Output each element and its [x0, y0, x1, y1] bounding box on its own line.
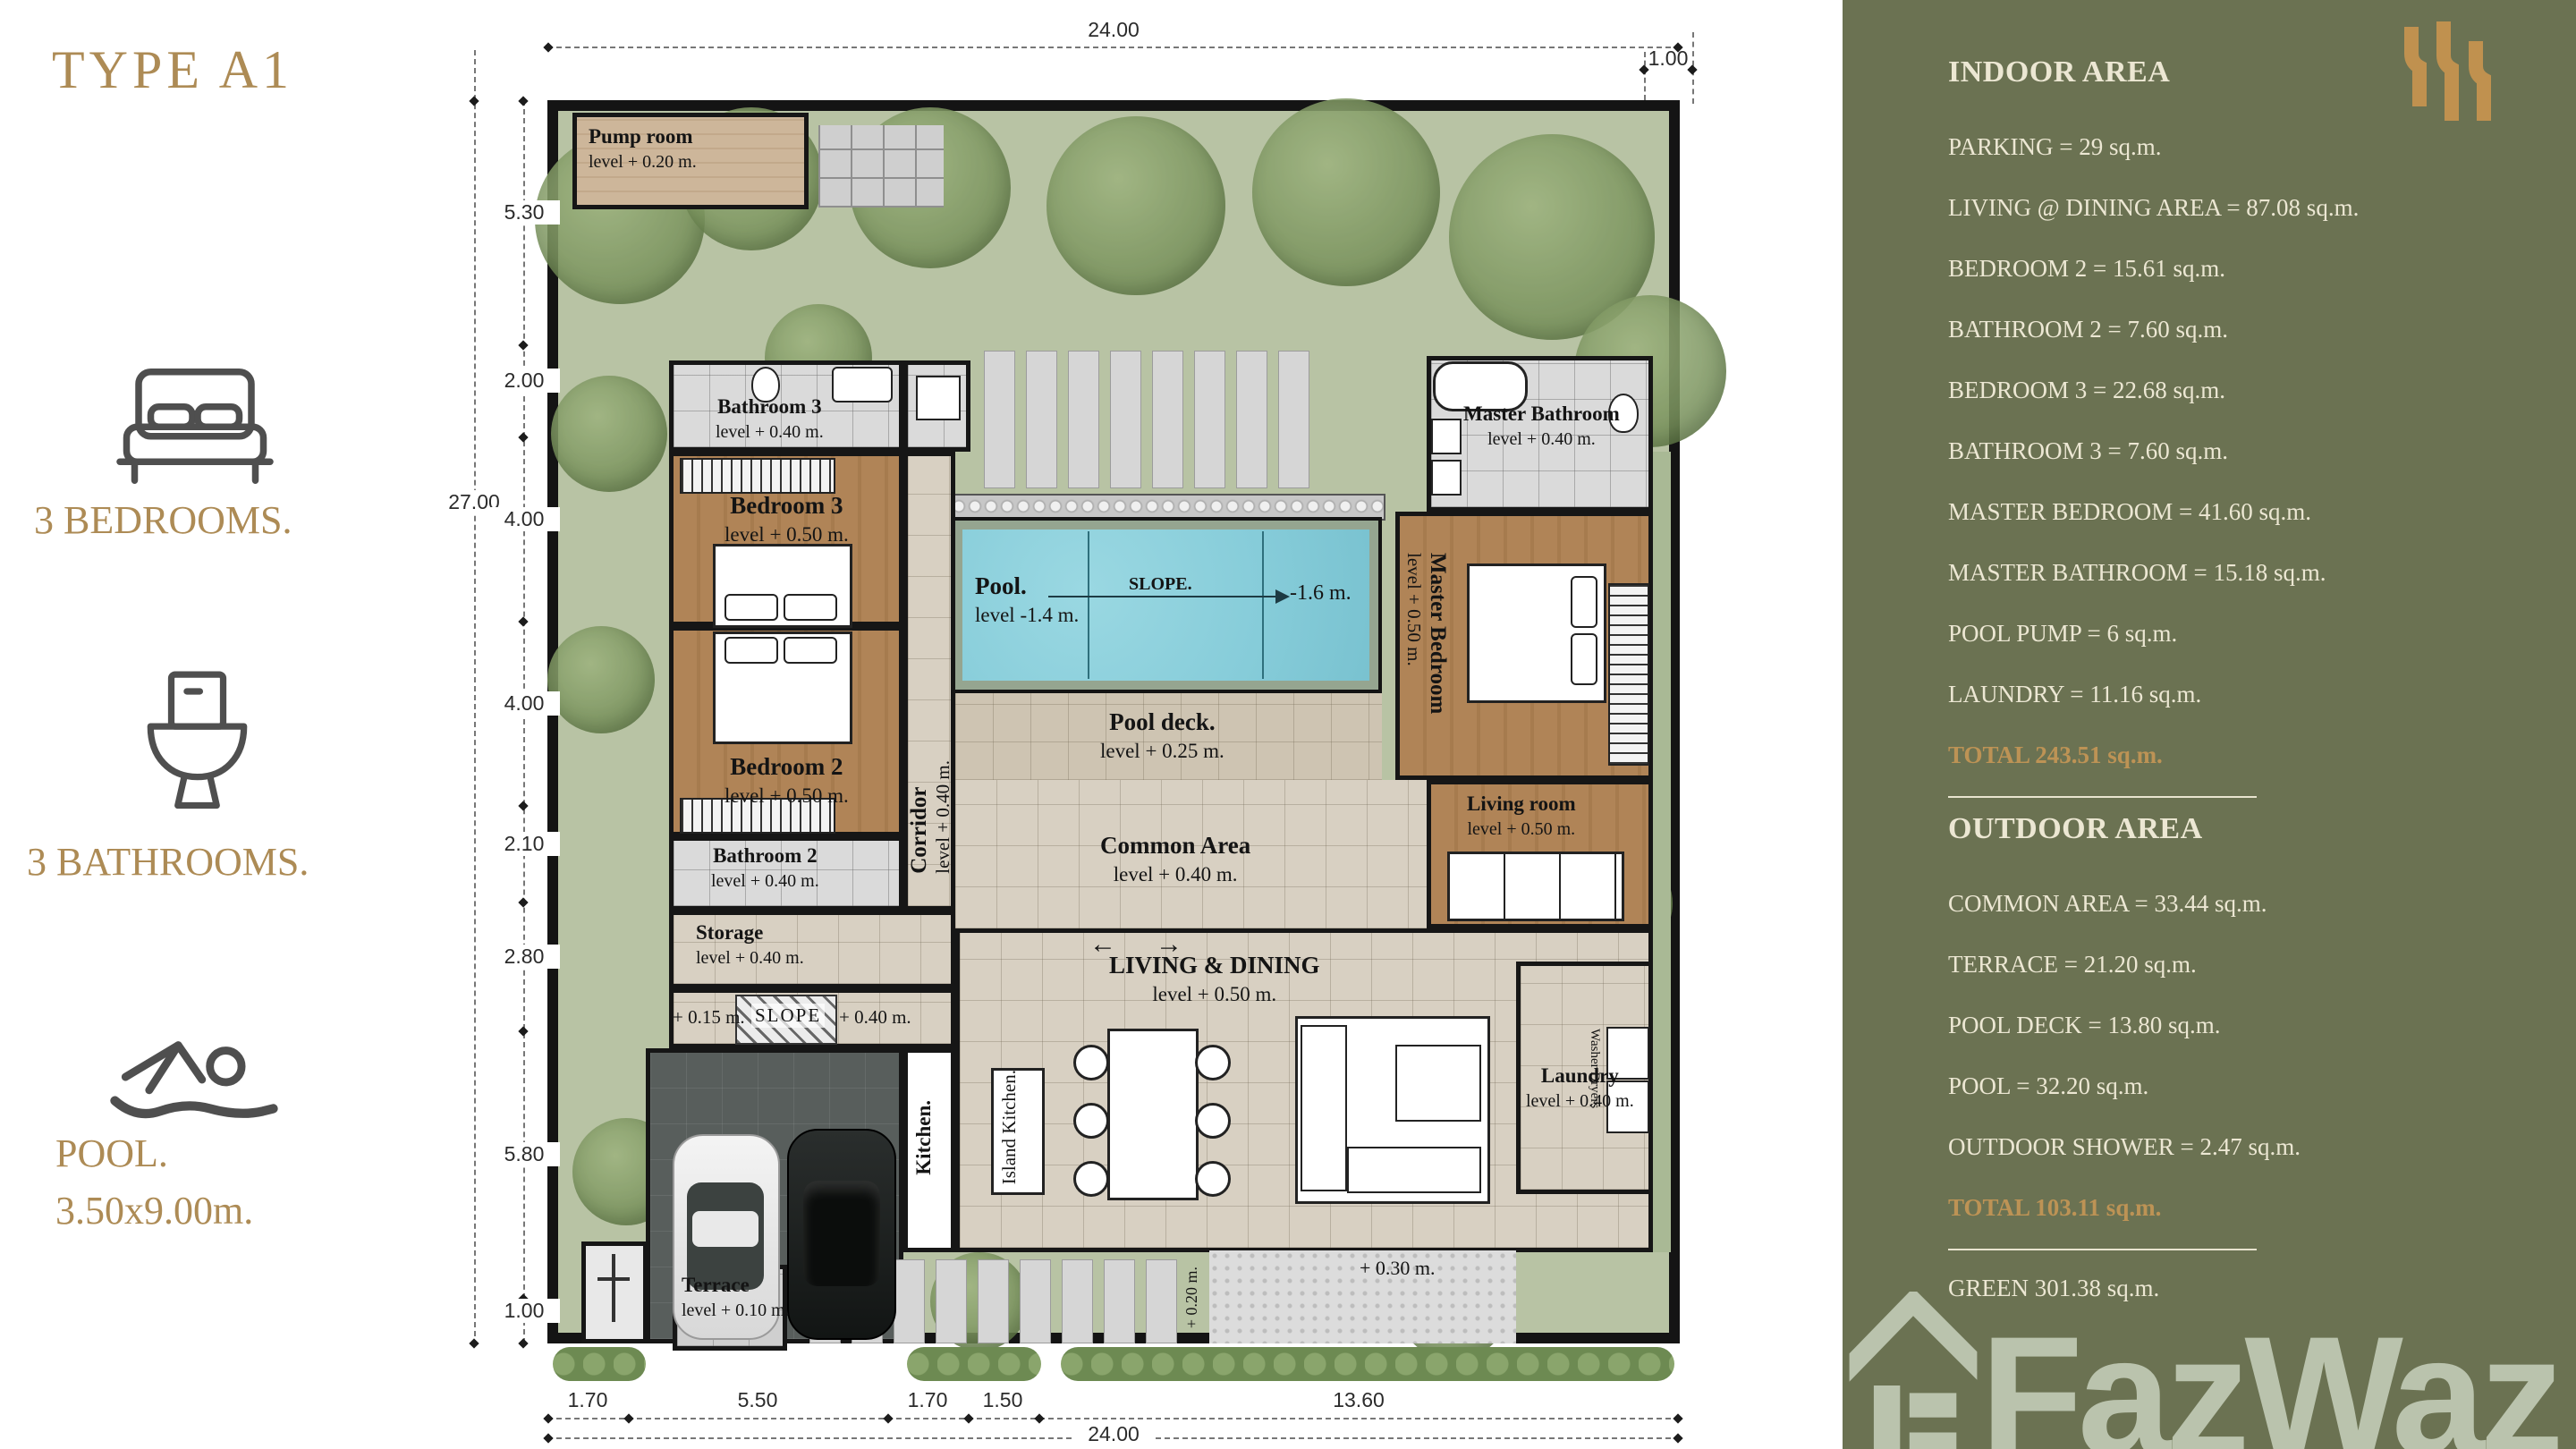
paver-slat: [894, 1259, 925, 1343]
dim-tick: [518, 897, 528, 907]
paver-slat: [1110, 351, 1141, 488]
dim-left-seg-4: 2.10: [488, 832, 560, 856]
room-level: level + 0.40 m.: [1463, 428, 1620, 451]
room-label-laundry: Laundry level + 0.40 m.: [1526, 1063, 1634, 1113]
room-name: LIVING & DINING: [1109, 950, 1320, 981]
floorplan-brochure: TYPE A1 3 BEDROOMS. 3 BATHROOMS. POOL. 3…: [0, 0, 2576, 1449]
ramp-left-text: + 0.15 m.: [673, 1005, 745, 1030]
dim-top-right: 1.00: [1632, 47, 1704, 71]
dim-tick: [543, 1413, 553, 1423]
washer-text: Washer Dryers: [1587, 1029, 1602, 1108]
brand-logo-icon: [2392, 21, 2499, 129]
ramp-right-label: + 0.40 m.: [839, 1005, 911, 1030]
outdoor-item: POOL = 32.20 sq.m.: [1948, 1055, 2540, 1116]
dim-left-seg-7: 1.00: [488, 1299, 560, 1323]
pool-slope-arrowhead: [1275, 589, 1290, 604]
pillow: [724, 637, 778, 664]
bathrooms-label: 3 BATHROOMS.: [27, 839, 309, 885]
pillow: [1571, 633, 1597, 685]
dim-tick: [1034, 1413, 1044, 1423]
pool-lane-line: [1262, 531, 1264, 679]
dim-tick: [518, 616, 528, 626]
outdoor-heading: OUTDOOR AREA: [1948, 812, 2540, 852]
room-level: level + 0.40 m.: [711, 869, 819, 893]
dining-chair: [1195, 1103, 1231, 1139]
tree: [547, 626, 655, 733]
room-name: Terrace: [682, 1272, 790, 1299]
room-label-bedroom2: Bedroom 2 level + 0.50 m.: [724, 751, 849, 809]
pool-lane-line: [1088, 531, 1089, 679]
dim-bottom-seg-1: 5.50: [717, 1388, 798, 1412]
car-windshield: [692, 1211, 758, 1247]
room-name: Bedroom 3: [724, 490, 849, 521]
dim-tick: [518, 340, 528, 350]
paver-slat: [1026, 351, 1057, 488]
tree: [1046, 116, 1225, 295]
paver-slat: [1236, 351, 1267, 488]
room-level: level + 0.40 m.: [1100, 861, 1250, 888]
pool-label-line1: POOL.: [55, 1131, 168, 1176]
room-label-master-bedroom: Master Bedroom level + 0.50 m.: [1402, 553, 1450, 714]
side-path: [1651, 452, 1671, 1252]
outdoor-items: COMMON AREA = 33.44 sq.m. TERRACE = 21.2…: [1948, 873, 2540, 1238]
toilet-icon: [132, 655, 262, 829]
wardrobe: [1608, 583, 1649, 766]
room-label-kitchen: Kitchen.: [912, 1100, 936, 1175]
dim-tick: [883, 1413, 893, 1423]
dim-tick: [543, 42, 553, 52]
depth-text: -1.6 m.: [1290, 580, 1352, 607]
outdoor-item: OUTDOOR SHOWER = 2.47 sq.m.: [1948, 1116, 2540, 1177]
room-label-corridor: Corridor level + 0.40 m.: [907, 760, 954, 874]
pillow: [724, 594, 778, 621]
pool-slope-arrow: [1048, 596, 1277, 597]
paver-slat: [1062, 1259, 1093, 1343]
room-label-pool: Pool. level -1.4 m.: [975, 571, 1079, 629]
room-level: level + 0.40 m.: [1526, 1089, 1634, 1113]
room-name: Pool deck.: [1100, 707, 1224, 738]
dining-chair: [1195, 1045, 1231, 1080]
car-roof: [803, 1181, 880, 1286]
room-level: level + 0.10 m.: [682, 1299, 790, 1322]
room-name: Kitchen.: [912, 1100, 936, 1175]
sofa-back: [1301, 1025, 1347, 1191]
dim-bottom-total: 24.00: [1073, 1422, 1154, 1446]
dim-top-total: 24.00: [1069, 18, 1158, 42]
dim-left-seg-2: 4.00: [488, 507, 560, 531]
room-name: Bedroom 2: [724, 751, 849, 783]
vanity: [1431, 460, 1462, 496]
shower-tray: [916, 376, 961, 420]
dim-line-left-total: [474, 50, 476, 1345]
room-name: Living room: [1467, 791, 1576, 818]
dim-left-seg-6: 5.80: [488, 1142, 560, 1166]
dim-line-top: [547, 47, 1680, 48]
indoor-item: BEDROOM 3 = 22.68 sq.m.: [1948, 360, 2540, 420]
pool-slope-label: SLOPE.: [1129, 572, 1192, 596]
room-level: level + 0.40 m.: [716, 420, 824, 444]
dim-tick: [518, 1026, 528, 1036]
bedrooms-label: 3 BEDROOMS.: [34, 497, 292, 543]
bathroom3-vanity: [832, 367, 893, 402]
pool-depth-label: -1.6 m.: [1290, 580, 1352, 607]
room-name: Pump room: [589, 123, 697, 150]
divider: [1948, 796, 2257, 798]
vanity: [1431, 419, 1462, 454]
indoor-item: BATHROOM 3 = 7.60 sq.m.: [1948, 420, 2540, 481]
room-name: Bathroom 3: [716, 394, 824, 420]
paver-slat: [984, 351, 1015, 488]
room-label-living-dining: LIVING & DINING level + 0.50 m.: [1109, 950, 1320, 1008]
outdoor-item: TERRACE = 21.20 sq.m.: [1948, 934, 2540, 995]
dim-left-seg-0: 5.30: [488, 200, 560, 225]
hedge: [907, 1347, 1041, 1381]
indoor-items: PARKING = 29 sq.m. LIVING @ DINING AREA …: [1948, 116, 2540, 785]
room-level: level + 0.50 m.: [724, 783, 849, 809]
ramp-text: SLOPE: [751, 1004, 825, 1028]
room-label-pump: Pump room level + 0.20 m.: [589, 123, 697, 174]
indoor-item: BATHROOM 2 = 7.60 sq.m.: [1948, 299, 2540, 360]
indoor-item: LIVING @ DINING AREA = 87.08 sq.m.: [1948, 177, 2540, 238]
dim-tick: [963, 1413, 973, 1423]
dim-left-seg-5: 2.80: [488, 945, 560, 969]
paver-slat: [1194, 351, 1225, 488]
ramp-slope-label: SLOPE: [751, 1004, 825, 1028]
room-level: level + 0.50 m.: [1109, 981, 1320, 1008]
ramp-right-text: + 0.40 m.: [839, 1005, 911, 1030]
room-name: Storage: [696, 919, 804, 946]
dining-table: [1107, 1029, 1199, 1200]
shower-crossbar: [597, 1277, 630, 1281]
room-name: Master Bedroom: [1425, 553, 1450, 714]
dim-tick: [518, 1338, 528, 1348]
dining-chair: [1195, 1161, 1231, 1197]
dim-tick: [518, 801, 528, 810]
dining-chair: [1073, 1103, 1109, 1139]
dim-left-seg-3: 4.00: [488, 691, 560, 716]
dim-line-bottom-segments: [547, 1418, 1680, 1419]
room-name: Corridor: [907, 760, 932, 874]
room-level: level + 0.40 m.: [932, 760, 954, 874]
dim-tick: [543, 1433, 553, 1443]
paver-slat: [936, 1259, 967, 1343]
indoor-item: MASTER BATHROOM = 15.18 sq.m.: [1948, 542, 2540, 603]
room-label-pool-deck: Pool deck. level + 0.25 m.: [1100, 707, 1224, 765]
wardrobe: [680, 458, 835, 494]
indoor-total: TOTAL 243.51 sq.m.: [1948, 724, 2540, 785]
page-title: TYPE A1: [52, 39, 293, 101]
green-area: GREEN 301.38 sq.m.: [1948, 1258, 2540, 1318]
dim-tick: [1673, 1433, 1682, 1443]
threshold-arrow-left: ←: [1089, 927, 1116, 962]
room-label-terrace: Terrace level + 0.10 m.: [682, 1272, 790, 1322]
room-label-common: Common Area level + 0.40 m.: [1100, 830, 1250, 888]
room-level: level + 0.50 m.: [1467, 818, 1576, 841]
swimmer-icon: [106, 1027, 280, 1132]
paver-slat: [1152, 351, 1183, 488]
sofa: [1447, 852, 1624, 921]
paver-slat: [1068, 351, 1099, 488]
indoor-item: MASTER BEDROOM = 41.60 sq.m.: [1948, 481, 2540, 542]
outdoor-item: POOL DECK = 13.80 sq.m.: [1948, 995, 2540, 1055]
tree: [1252, 98, 1440, 286]
paver-slat: [1104, 1259, 1135, 1343]
room-label-living-room: Living room level + 0.50 m.: [1467, 791, 1576, 841]
room-label-bathroom2: Bathroom 2 level + 0.40 m.: [711, 843, 819, 893]
arrow-right-text: →: [1156, 927, 1182, 962]
path-text: + 0.20 m.: [1182, 1267, 1201, 1328]
pool-label-line2: 3.50x9.00m.: [55, 1188, 253, 1233]
indoor-item: POOL PUMP = 6 sq.m.: [1948, 603, 2540, 664]
dim-tick: [469, 1338, 479, 1348]
pillow: [784, 594, 837, 621]
panel-content: INDOOR AREA PARKING = 29 sq.m. LIVING @ …: [1843, 0, 2576, 1318]
paver-grid: [818, 125, 944, 208]
room-name: Laundry: [1526, 1063, 1634, 1089]
yard-text: + 0.30 m.: [1360, 1256, 1436, 1282]
paver-slat: [978, 1259, 1009, 1343]
dim-left-seg-1: 2.00: [488, 369, 560, 393]
shower-pipe: [612, 1254, 615, 1322]
room-label-bathroom3: Bathroom 3 level + 0.40 m.: [716, 394, 824, 444]
ramp-left-label: + 0.15 m.: [673, 1005, 745, 1030]
dim-tick: [1673, 1413, 1682, 1423]
room-name: Master Bathroom: [1463, 401, 1620, 428]
dim-bottom-seg-2: 1.70: [887, 1388, 968, 1412]
dining-chair: [1073, 1045, 1109, 1080]
room-level: level + 0.50 m.: [1402, 553, 1425, 714]
dining-chair: [1073, 1161, 1109, 1197]
pillow: [1571, 576, 1597, 628]
dim-tick: [469, 96, 479, 106]
path-level-label: + 0.20 m.: [1182, 1267, 1201, 1328]
dim-tick: [518, 432, 528, 442]
outdoor-total: TOTAL 103.11 sq.m.: [1948, 1177, 2540, 1238]
dim-bottom-seg-0: 1.70: [547, 1388, 628, 1412]
room-label-bedroom3: Bedroom 3 level + 0.50 m.: [724, 490, 849, 548]
dim-tick: [518, 96, 528, 106]
pillow: [784, 637, 837, 664]
room-level: level + 0.20 m.: [589, 150, 697, 174]
room-name: Island Kitchen.: [998, 1070, 1021, 1184]
yard-level-label: + 0.30 m.: [1360, 1256, 1436, 1282]
tree: [551, 376, 667, 492]
dim-tick: [623, 1413, 633, 1423]
divider: [1948, 1249, 2257, 1250]
hedge: [1061, 1347, 1674, 1381]
paver-slat: [1020, 1259, 1051, 1343]
outdoor-item: COMMON AREA = 33.44 sq.m.: [1948, 873, 2540, 934]
coffee-table: [1395, 1045, 1481, 1122]
room-name: Bathroom 2: [711, 843, 819, 869]
sofa-bench: [1347, 1147, 1481, 1193]
hedge: [553, 1347, 646, 1381]
paver-slat: [1278, 351, 1309, 488]
room-level: level + 0.25 m.: [1100, 738, 1224, 765]
area-summary-panel: FazWaz INDOOR AREA PARKING = 29 sq.m. LI…: [1843, 0, 2576, 1449]
threshold-arrow-right: →: [1156, 927, 1182, 962]
paver-slat: [1146, 1259, 1177, 1343]
room-label-island: Island Kitchen.: [998, 1070, 1021, 1184]
dim-bottom-seg-3: 1.50: [962, 1388, 1043, 1412]
room-name: Common Area: [1100, 830, 1250, 861]
fazwaz-watermark-text: FazWaz: [1980, 1311, 2558, 1449]
bed-icon: [114, 365, 275, 490]
room-label-master-bathroom: Master Bathroom level + 0.40 m.: [1463, 401, 1620, 451]
room-level: level + 0.50 m.: [724, 521, 849, 548]
washer-dryer-label: Washer Dryers: [1587, 1029, 1602, 1108]
car-black: [787, 1129, 896, 1340]
arrow-left-text: ←: [1089, 927, 1116, 962]
dim-bottom-seg-4: 13.60: [1318, 1388, 1399, 1412]
slope-text: SLOPE.: [1129, 572, 1192, 596]
indoor-item: BEDROOM 2 = 15.61 sq.m.: [1948, 238, 2540, 299]
indoor-item: LAUNDRY = 11.16 sq.m.: [1948, 664, 2540, 724]
room-level: level + 0.40 m.: [696, 946, 804, 970]
room-label-storage: Storage level + 0.40 m.: [696, 919, 804, 970]
room-level: level -1.4 m.: [975, 602, 1079, 629]
